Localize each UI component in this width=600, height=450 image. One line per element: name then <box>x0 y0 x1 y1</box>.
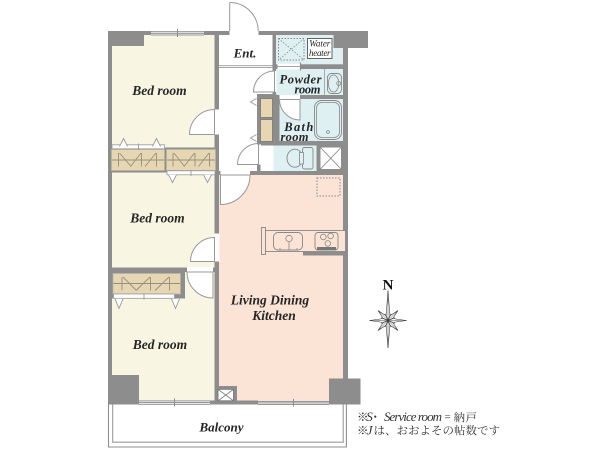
svg-text:Bed room: Bed room <box>129 211 184 226</box>
svg-text:Service room: Service room <box>384 409 442 424</box>
svg-text:Water: Water <box>309 38 330 48</box>
svg-text:=: = <box>445 412 451 424</box>
svg-text:Kitchen: Kitchen <box>251 308 296 323</box>
svg-text:room: room <box>281 130 309 144</box>
svg-text:heater: heater <box>309 48 331 58</box>
svg-text:Bed room: Bed room <box>132 337 187 352</box>
svg-text:Ent.: Ent. <box>233 45 257 60</box>
svg-text:Balcony: Balcony <box>198 420 243 435</box>
svg-text:Living Dining: Living Dining <box>230 293 310 308</box>
svg-text:Bed room: Bed room <box>131 83 186 98</box>
svg-text:room: room <box>295 83 321 97</box>
